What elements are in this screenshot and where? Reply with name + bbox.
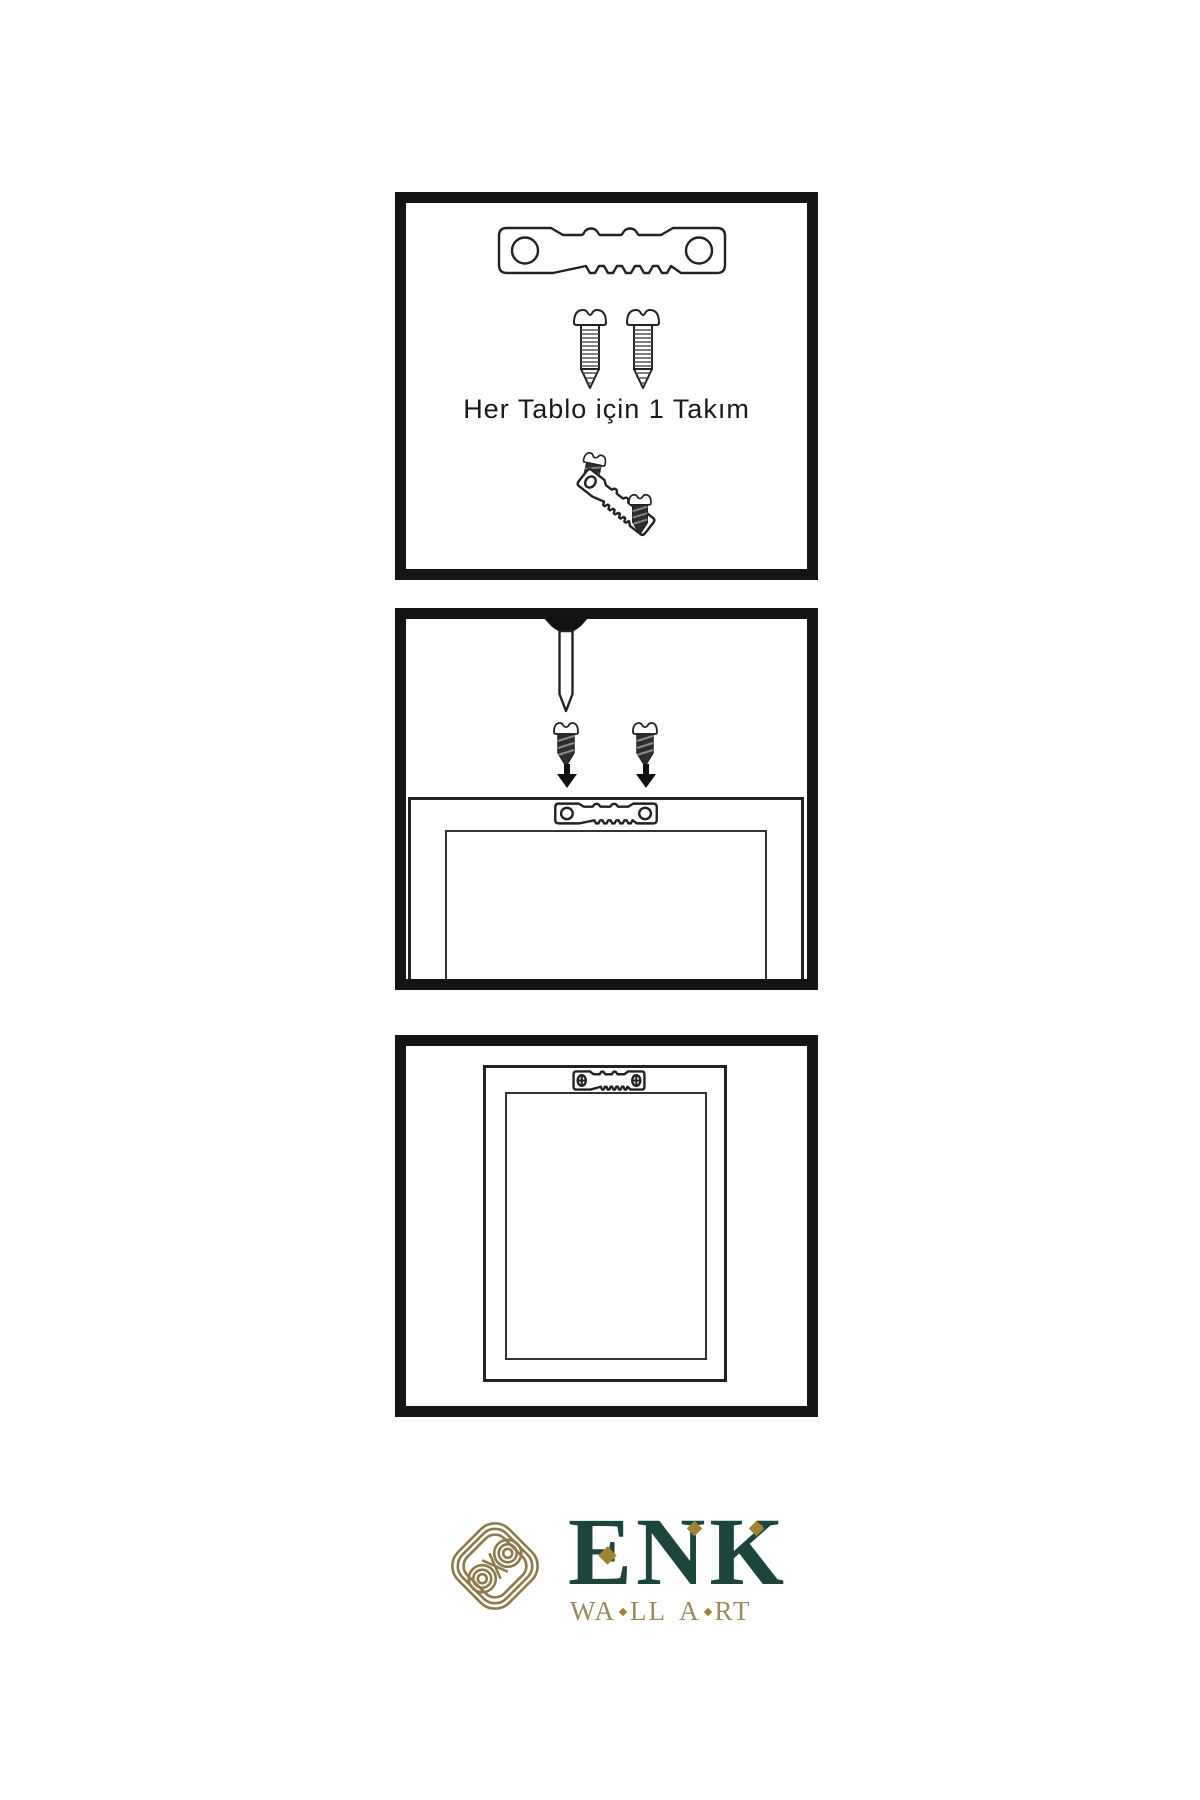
brand-tagline: WA LL A RT (570, 1596, 751, 1627)
screw-icon (625, 305, 661, 391)
tagline-segment: A (679, 1596, 701, 1627)
nail-icon (543, 617, 589, 719)
tagline-segment: WA (570, 1596, 616, 1627)
screw-icon (628, 492, 652, 536)
diamond-accent-icon (703, 1607, 711, 1615)
mounted-sawtooth-hanger-icon (572, 1069, 646, 1092)
tagline-segment: RT (715, 1596, 752, 1627)
tagline-segment: LL (630, 1596, 667, 1627)
arrow-down-icon (636, 764, 656, 788)
screw-icon (553, 720, 579, 768)
diamond-accent-icon (619, 1607, 627, 1615)
picture-frame-inner (445, 830, 767, 979)
screw-icon (632, 720, 658, 768)
step1-caption: Her Tablo için 1 Takım (395, 394, 818, 425)
screw-icon (572, 305, 608, 391)
sawtooth-hanger-icon (553, 801, 659, 826)
sawtooth-hanger-icon (494, 222, 730, 279)
instruction-sheet: Her Tablo için 1 Takım ENK (0, 0, 1200, 1800)
arrow-down-icon (557, 764, 577, 788)
knot-emblem-icon (435, 1502, 555, 1630)
picture-frame-inner (505, 1092, 707, 1360)
